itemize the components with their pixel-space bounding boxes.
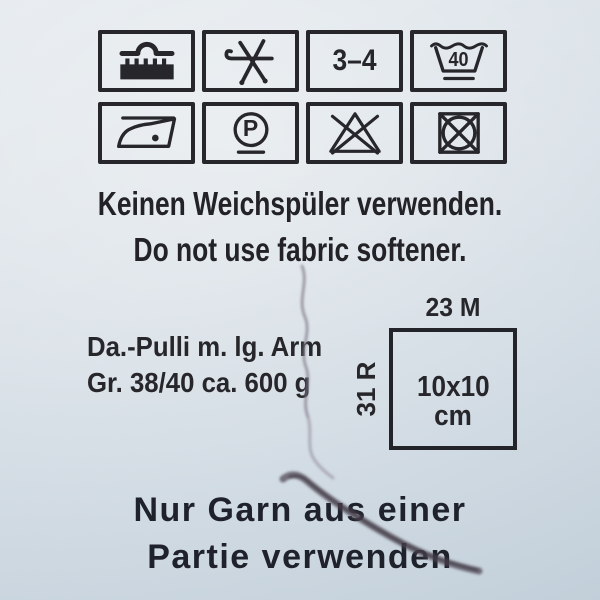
care-symbol-no-tumble-dry <box>410 102 507 164</box>
garment-line1: Da.-Pulli m. lg. Arm <box>87 329 322 365</box>
crossed-needles-icon <box>210 36 292 86</box>
dry-clean-letter: P <box>206 106 295 150</box>
instruction-german: Keinen Weichspüler verwenden. <box>60 181 540 227</box>
garment-requirement: Da.-Pulli m. lg. Arm Gr. 38/40 ca. 600 g <box>87 329 322 401</box>
care-symbol-grid: 3–4 40 P <box>98 30 507 164</box>
gauge-rows: 31 R <box>352 350 380 428</box>
dye-lot-note: Nur Garn aus einer Partie verwenden <box>0 487 600 581</box>
dye-lot-line1: Nur Garn aus einer <box>0 487 600 534</box>
care-symbol-machine-knitting <box>98 30 195 92</box>
care-symbol-needle-size: 3–4 <box>306 30 403 92</box>
wash-temperature-text: 40 <box>418 40 498 72</box>
garment-line2: Gr. 38/40 ca. 600 g <box>87 365 322 401</box>
softener-instructions: Keinen Weichspüler verwenden. Do not use… <box>0 181 600 273</box>
do-not-tumble-dry-icon <box>418 108 500 158</box>
gauge-swatch-square: 10x10 cm <box>389 328 517 450</box>
instruction-english: Do not use fabric softener. <box>60 227 540 273</box>
needle-size-text: 3–4 <box>315 34 393 88</box>
gauge-stitches: 23 M <box>392 292 514 323</box>
care-symbol-wash-40: 40 <box>410 30 507 92</box>
iron-icon <box>106 108 188 158</box>
gauge-swatch-unit: cm <box>434 402 472 431</box>
gauge-swatch-size: 10x10 <box>417 373 490 402</box>
care-symbol-iron-low <box>98 102 195 164</box>
yarn-care-label: 3–4 40 P <box>0 0 600 600</box>
care-symbol-hand-knitting <box>202 30 299 92</box>
care-symbol-no-bleach <box>306 102 403 164</box>
dye-lot-line2: Partie verwenden <box>0 534 600 581</box>
machine-knitting-icon <box>106 36 188 86</box>
care-symbol-dryclean-p: P <box>202 102 299 164</box>
do-not-bleach-icon <box>314 108 396 158</box>
